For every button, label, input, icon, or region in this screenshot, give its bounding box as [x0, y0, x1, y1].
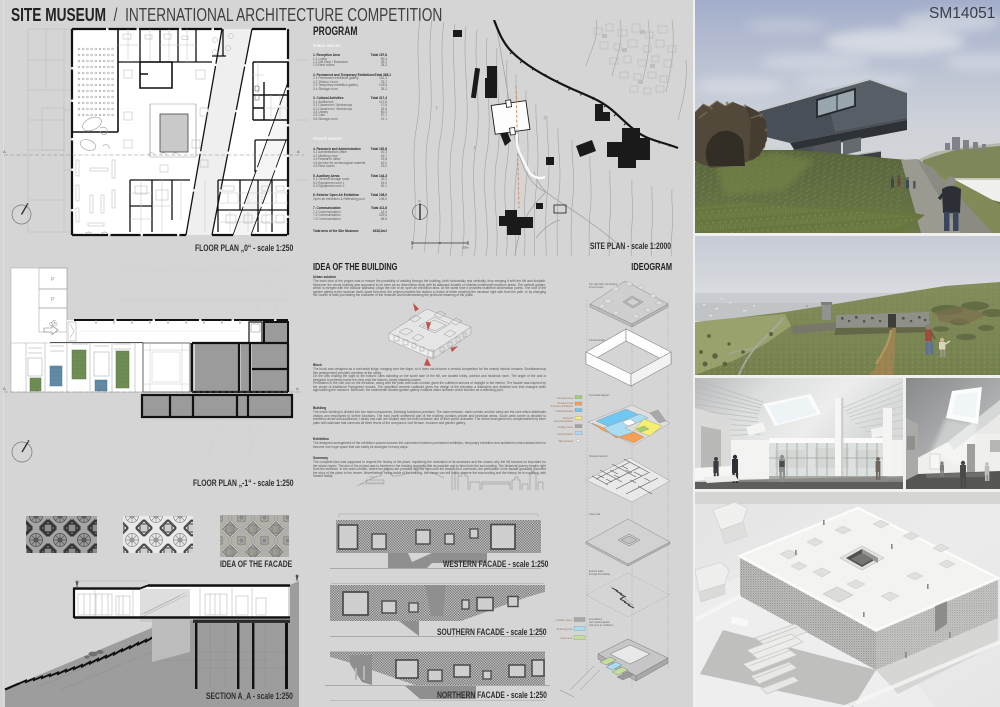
svg-text:with open air exhibition: with open air exhibition: [589, 624, 614, 627]
svg-text:Permanent and: Permanent and: [557, 402, 573, 405]
svg-text:Research: Research: [563, 417, 574, 420]
svg-text:Main entrance: Main entrance: [558, 440, 573, 443]
svg-text:250: 250: [543, 115, 547, 120]
svg-text:Reception Area: Reception Area: [557, 397, 573, 400]
svg-text:240: 240: [435, 105, 439, 110]
svg-text:A: A: [296, 386, 299, 391]
svg-text:Internal facade: Internal facade: [589, 339, 605, 342]
svg-text:A: A: [3, 149, 6, 154]
svg-text:P: P: [51, 297, 55, 303]
svg-text:& roof terrace: & roof terrace: [589, 286, 604, 289]
svg-text:100m: 100m: [462, 246, 469, 250]
svg-text:Structural system: Structural system: [589, 455, 607, 458]
svg-text:and Administration: and Administration: [554, 420, 574, 423]
svg-text:through the building: through the building: [589, 573, 611, 576]
svg-text:Auxiliary Areas: Auxiliary Areas: [558, 426, 574, 429]
svg-text:Cultural Activities: Cultural Activities: [556, 410, 574, 413]
svg-text:Reflecting pool: Reflecting pool: [557, 628, 573, 631]
svg-text:Green area: Green area: [560, 637, 572, 640]
svg-text:Functional diagram: Functional diagram: [589, 394, 609, 397]
svg-text:A: A: [3, 386, 6, 391]
svg-text:Communication: Communication: [557, 433, 574, 436]
svg-text:Temporary Exhibitions: Temporary Exhibitions: [550, 405, 573, 408]
svg-text:A: A: [297, 149, 300, 154]
svg-text:P: P: [51, 277, 55, 283]
svg-text:N: N: [419, 199, 421, 203]
svg-text:Lower hall: Lower hall: [589, 513, 600, 516]
svg-text:exhibition space: exhibition space: [556, 619, 573, 622]
